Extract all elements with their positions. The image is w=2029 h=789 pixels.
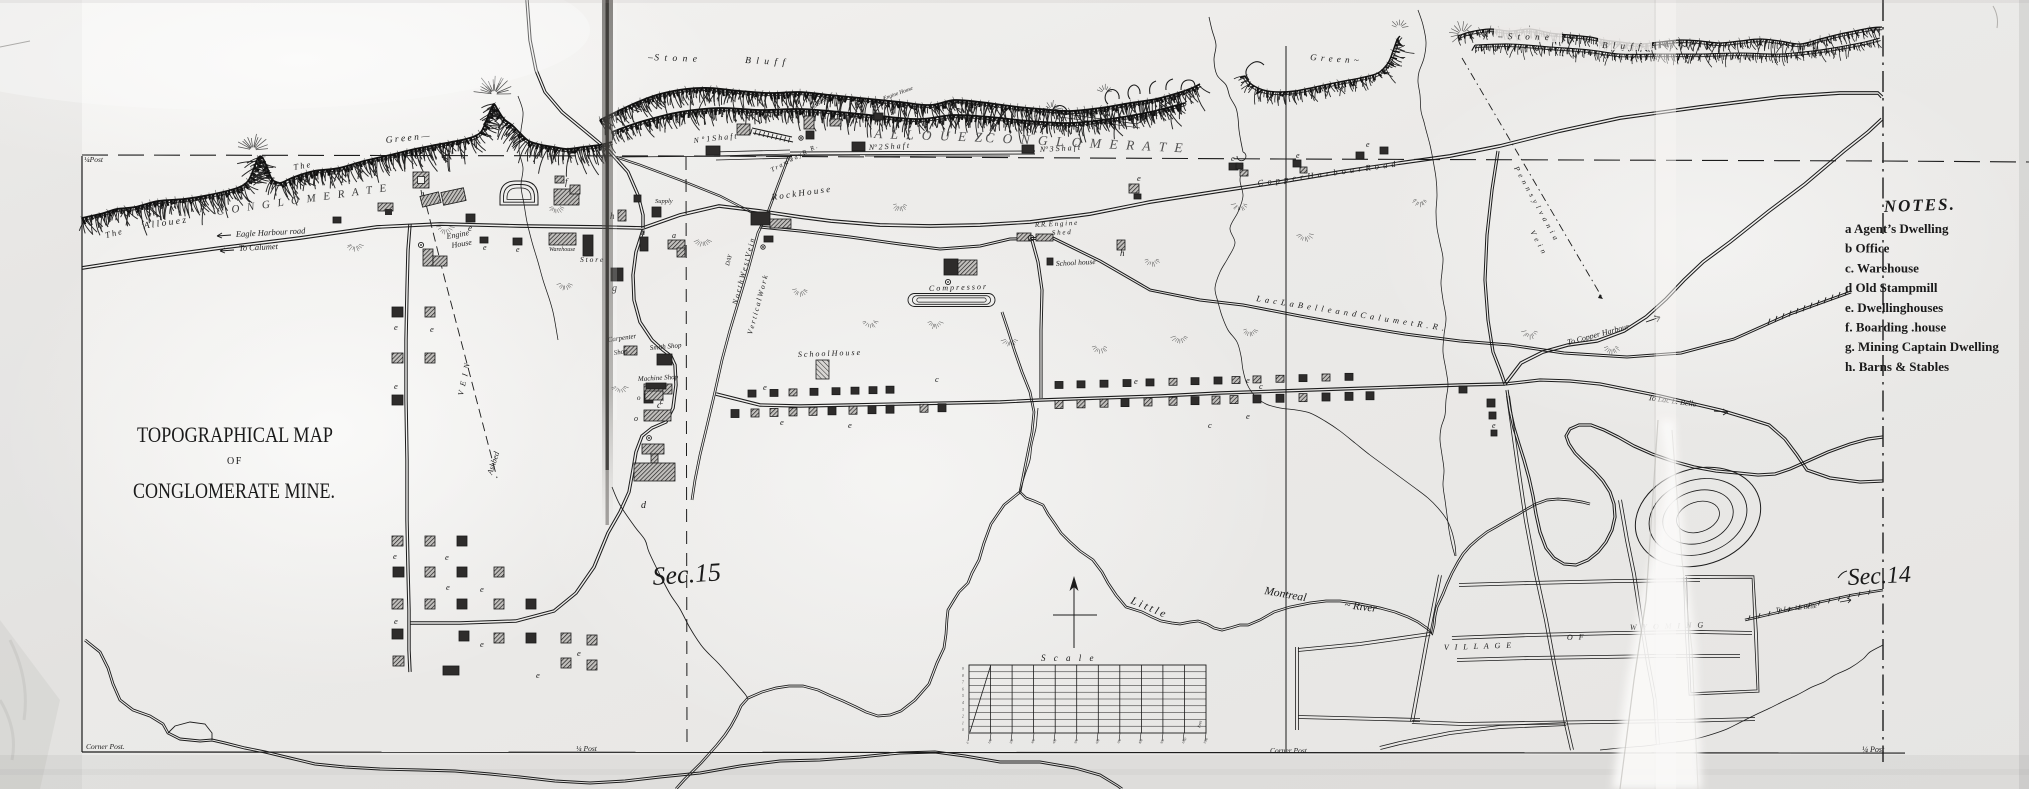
svg-text:e: e: [1296, 151, 1300, 160]
svg-text:e: e: [445, 552, 449, 562]
svg-text:e: e: [577, 648, 581, 658]
svg-text:Sec.15: Sec.15: [651, 557, 721, 591]
svg-text:c: c: [1208, 420, 1212, 430]
svg-text:8: 8: [962, 674, 964, 678]
svg-text:OF: OF: [227, 456, 243, 467]
svg-text:e: e: [393, 551, 397, 561]
svg-text:e: e: [848, 420, 852, 430]
svg-text:c. Warehouse: c. Warehouse: [1845, 260, 1919, 275]
svg-text:e: e: [480, 639, 484, 649]
svg-text:e: e: [1246, 411, 1250, 421]
svg-text:e: e: [1231, 154, 1235, 163]
svg-text:Corner Post: Corner Post: [1270, 746, 1308, 755]
svg-text:f. Boarding .house: f. Boarding .house: [1845, 320, 1946, 335]
svg-text:d Old Stampmill: d Old Stampmill: [1845, 280, 1938, 295]
svg-text:3: 3: [962, 708, 964, 712]
svg-text:o: o: [637, 394, 641, 402]
svg-text:a Agent’s Dwelling: a Agent’s Dwelling: [1845, 221, 1949, 236]
svg-text:9: 9: [962, 667, 964, 671]
svg-text:e: e: [394, 616, 398, 626]
svg-text:B l u f f: B l u f f: [1602, 40, 1642, 51]
svg-text:5: 5: [962, 694, 964, 698]
svg-text:1: 1: [962, 721, 964, 725]
svg-text:h: h: [641, 228, 645, 237]
svg-text:S c a l e: S c a l e: [1041, 653, 1097, 663]
svg-text:0: 0: [962, 728, 964, 732]
svg-text:S h e d: S h e d: [1052, 228, 1072, 237]
svg-text:o: o: [634, 414, 638, 423]
svg-text:e: e: [516, 245, 520, 254]
svg-text:e: e: [1246, 375, 1250, 385]
svg-text:e: e: [1134, 376, 1138, 386]
svg-text:7: 7: [962, 681, 964, 685]
svg-text:e: e: [483, 243, 487, 252]
svg-text:Supply: Supply: [655, 198, 673, 205]
svg-text:e: e: [763, 382, 767, 392]
svg-text:g. Mining Captain Dwelling: g. Mining Captain Dwelling: [1845, 339, 1999, 354]
svg-text:CONGLOMERATE MINE.: CONGLOMERATE MINE.: [133, 478, 335, 503]
svg-text:b Office: b Office: [1845, 241, 1890, 256]
svg-text:O F: O F: [1567, 632, 1586, 642]
svg-text:e. Dwellinghouses: e. Dwellinghouses: [1845, 300, 1943, 315]
svg-text:c: c: [1259, 381, 1263, 391]
svg-text:Corner Post.: Corner Post.: [86, 742, 125, 751]
svg-text:– S t o n e: – S t o n e: [1497, 31, 1550, 42]
svg-text:e: e: [394, 381, 398, 391]
svg-text:2: 2: [962, 715, 964, 719]
svg-text:¼Post: ¼Post: [84, 155, 104, 164]
svg-text:e: e: [1492, 421, 1496, 430]
svg-text:To Calumet: To Calumet: [239, 241, 279, 253]
svg-text:c: c: [660, 397, 664, 406]
svg-text:a: a: [672, 231, 676, 240]
svg-text:¼ Post: ¼ Post: [1862, 745, 1885, 754]
svg-text:TOPOGRAPHICAL MAP: TOPOGRAPHICAL MAP: [137, 422, 333, 447]
svg-text:e: e: [780, 417, 784, 427]
svg-text:Sec.14: Sec.14: [1847, 562, 1912, 591]
svg-text:–S t o n e: –S t o n e: [647, 53, 699, 65]
svg-text:B l u f f: B l u f f: [745, 55, 787, 68]
svg-text:e: e: [430, 324, 434, 334]
svg-text:e: e: [480, 584, 484, 594]
svg-text:4: 4: [962, 701, 964, 705]
svg-text:e: e: [394, 322, 398, 332]
svg-text:e: e: [536, 670, 540, 680]
svg-text:6: 6: [962, 687, 964, 691]
svg-text:h. Barns & Stables: h. Barns & Stables: [1845, 359, 1949, 374]
svg-text:NOTES.: NOTES.: [1882, 194, 1956, 216]
svg-text:e: e: [1137, 173, 1141, 183]
svg-text:e: e: [446, 582, 450, 592]
svg-text:S t o r e: S t o r e: [580, 255, 604, 264]
svg-text:h: h: [1120, 248, 1125, 258]
svg-text:Warehouse: Warehouse: [549, 247, 576, 253]
svg-text:c: c: [935, 374, 939, 384]
svg-text:e: e: [1366, 140, 1370, 149]
svg-text:¼ Post: ¼ Post: [576, 744, 598, 753]
